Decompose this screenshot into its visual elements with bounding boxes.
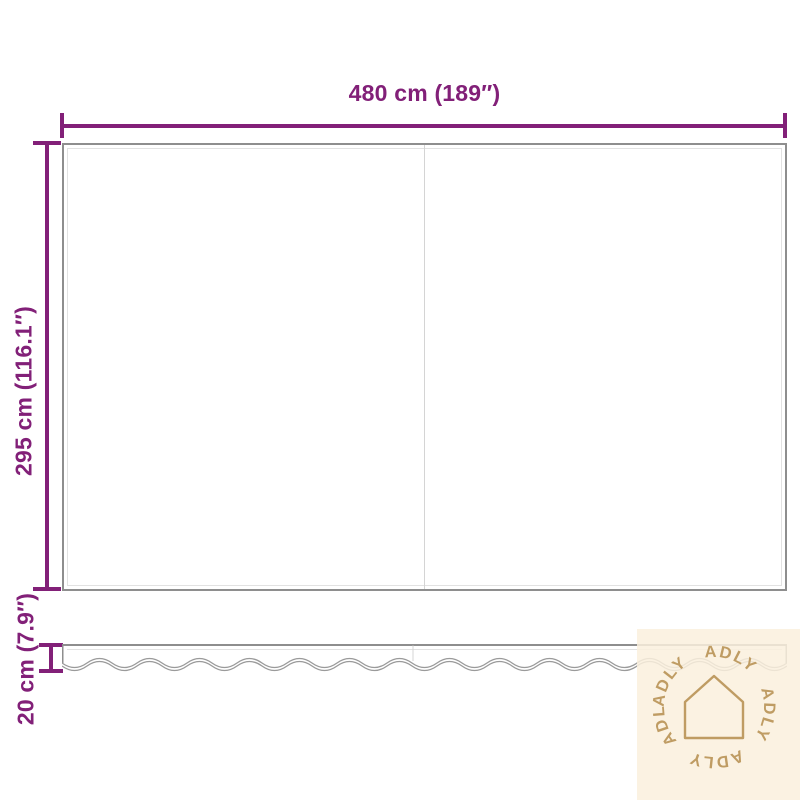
watermark-ring-text: ADLY ADLY ADLY ADLY ADLY xyxy=(637,629,778,771)
height-dimension-label: 295 cm (116.1″) xyxy=(11,306,38,476)
valance-dimension-tick-top xyxy=(39,643,63,647)
height-dimension-line xyxy=(45,143,49,591)
width-dimension-label: 480 cm (189″) xyxy=(62,80,787,107)
brand-watermark: ADLY ADLY ADLY ADLY ADLY xyxy=(637,629,800,800)
width-dimension-tick-left xyxy=(60,113,64,138)
product-dimension-diagram: 480 cm (189″) 295 cm (116.1″) 20 cm (7.9… xyxy=(0,0,800,800)
valance-height-dimension-label: 20 cm (7.9″) xyxy=(13,593,40,725)
height-dimension-tick-bottom xyxy=(33,587,61,591)
fabric-center-seam xyxy=(424,145,425,589)
width-dimension-line xyxy=(62,124,787,128)
house-icon xyxy=(685,676,743,738)
valance-dimension-line xyxy=(49,645,53,672)
width-dimension-tick-right xyxy=(783,113,787,138)
height-dimension-tick-top xyxy=(33,141,61,145)
valance-dimension-tick-bottom xyxy=(39,669,63,673)
awning-fabric-panel xyxy=(62,143,787,591)
